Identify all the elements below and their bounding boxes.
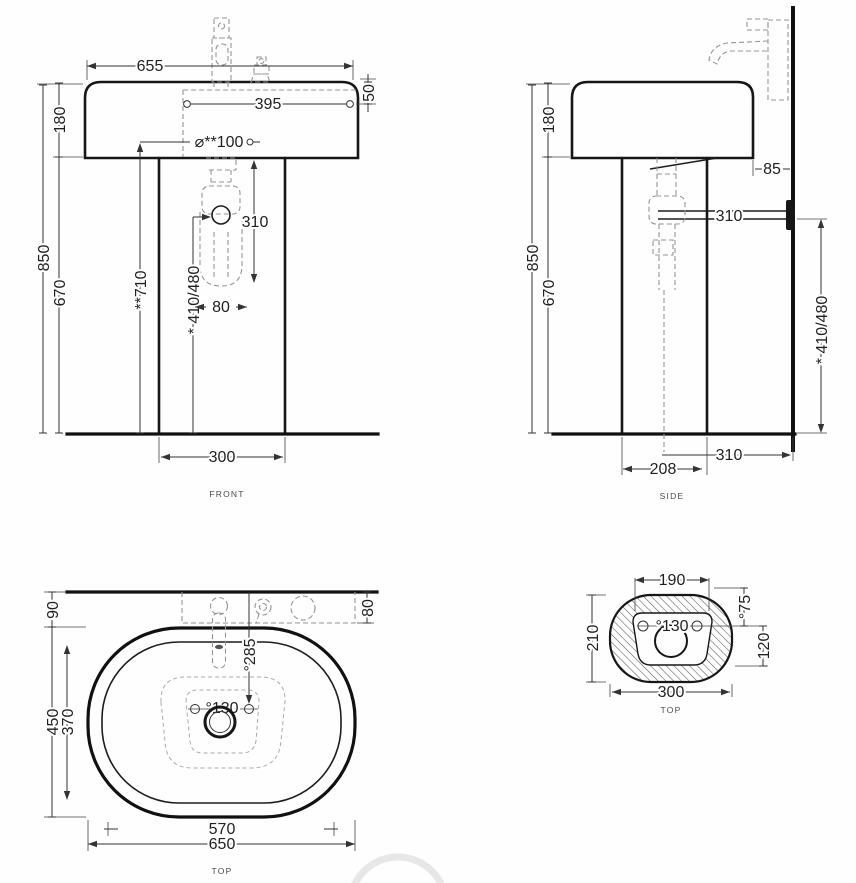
dim-label-395: 395: [255, 96, 282, 113]
dim-label-180: 180: [52, 107, 69, 134]
dim-front-holes-span: 395: [184, 96, 354, 113]
dim-label-side-180: 180: [541, 107, 558, 134]
waste-pipe: 310: [658, 200, 795, 230]
dim-label-plan-80: 80: [360, 599, 377, 617]
faucet-front-icon: [212, 18, 270, 82]
dim-label-side-670: 670: [541, 280, 558, 307]
dim-plan-deck: 80: [357, 592, 377, 623]
dim-label-655: 655: [137, 58, 164, 75]
dim-plan-widths: 570 650: [88, 820, 355, 853]
dim-front-trap-drop: 310: [242, 160, 269, 283]
basin-inner-rim: [102, 642, 341, 803]
dim-label-wall-310: 310: [716, 447, 743, 464]
pedestal-plan-view: °130 190 210 °75 120: [585, 572, 773, 715]
dim-label-300: 300: [209, 449, 236, 466]
dim-label-670: 670: [52, 280, 69, 307]
front-view-label: FRONT: [209, 489, 244, 499]
side-basin-outline: [572, 82, 753, 158]
front-view: 655 50 395 ⌀**100 **710: [36, 18, 378, 499]
dim-label-ped-300: 300: [658, 684, 685, 701]
aerator-dot: [215, 645, 223, 649]
side-view: 310 85 850 180 670: [525, 8, 831, 501]
dim-label-85: 85: [763, 161, 781, 178]
basin-plan-label: TOP: [212, 866, 233, 876]
dim-label-80: 80: [212, 299, 230, 316]
side-pedestal: [622, 158, 707, 433]
dim-label-285: °285: [242, 638, 259, 671]
dim-plan-drain-setback: °285: [242, 592, 259, 704]
dim-plan-bowl-depth: 370: [60, 645, 77, 800]
pipe-flange: [786, 200, 795, 230]
dim-label-410-480: * 410/480: [186, 266, 203, 335]
dim-label-outlet-310: 310: [716, 208, 743, 225]
front-pedestal: [159, 158, 285, 433]
dim-front-width: 655: [87, 58, 353, 80]
dim-ped-depth: 210: [585, 595, 606, 682]
dim-side-depths: 310 208: [622, 437, 793, 478]
technical-drawing: 655 50 395 ⌀**100 **710: [0, 0, 856, 883]
dim-label-side-850: 850: [525, 245, 542, 272]
dim-plan-depths-left: 90 450: [44, 592, 86, 817]
dim-side-wall-gap: 85: [753, 160, 790, 178]
dim-side-supply-height: * 410/480: [797, 219, 831, 433]
pedestal-plan-label: TOP: [661, 705, 682, 715]
basin-drain-group: °130: [188, 700, 258, 737]
dim-front-pedestal-width: 300: [159, 437, 285, 466]
dim-label-50: 50: [361, 84, 378, 102]
dim-label-side-410-480: * 410/480: [814, 296, 831, 365]
dim-label-710: **710: [133, 270, 150, 309]
dim-ped-width: 300: [610, 684, 732, 701]
plan-deck-hidden: [182, 592, 355, 623]
dim-label-210: 210: [585, 625, 602, 652]
dim-label-90: 90: [45, 601, 62, 619]
dim-label-208: 208: [650, 461, 677, 478]
bowl-hidden-outline: [161, 677, 285, 768]
basin-outer-rim: [88, 628, 355, 817]
dim-label-120: 120: [756, 633, 773, 660]
trap-front-icon: [200, 158, 242, 286]
dim-front-heights: 850 180 670: [36, 83, 83, 433]
dim-label-650: 650: [209, 836, 236, 853]
dim-label-75: °75: [737, 595, 754, 619]
dim-ped-drain-zone: 120: [735, 626, 773, 666]
dim-label-100: ⌀**100: [195, 134, 244, 151]
faucet-side-icon: [709, 19, 788, 100]
dim-label-310: 310: [242, 214, 269, 231]
trap-side-icon: [649, 158, 685, 452]
dim-front-drain-height: **710: [133, 143, 150, 433]
dim-label-190: 190: [659, 572, 686, 589]
basin-plan-view: °130 90 450 370 80 °285: [44, 592, 377, 876]
dim-front-supply-height: * 410/480: [186, 214, 211, 433]
dim-front-overflow: ⌀**100: [140, 134, 260, 151]
dim-label-850: 850: [36, 245, 53, 272]
dim-side-heights: 850 180 670: [525, 83, 570, 433]
watermark-arc: [350, 857, 446, 883]
side-view-label: SIDE: [660, 491, 685, 501]
drawing-sheet: 655 50 395 ⌀**100 **710: [0, 0, 856, 883]
faucet-plan-icon: [211, 596, 316, 668]
dim-label-370: 370: [60, 709, 77, 736]
dim-label-ped-130: °130: [655, 618, 688, 635]
